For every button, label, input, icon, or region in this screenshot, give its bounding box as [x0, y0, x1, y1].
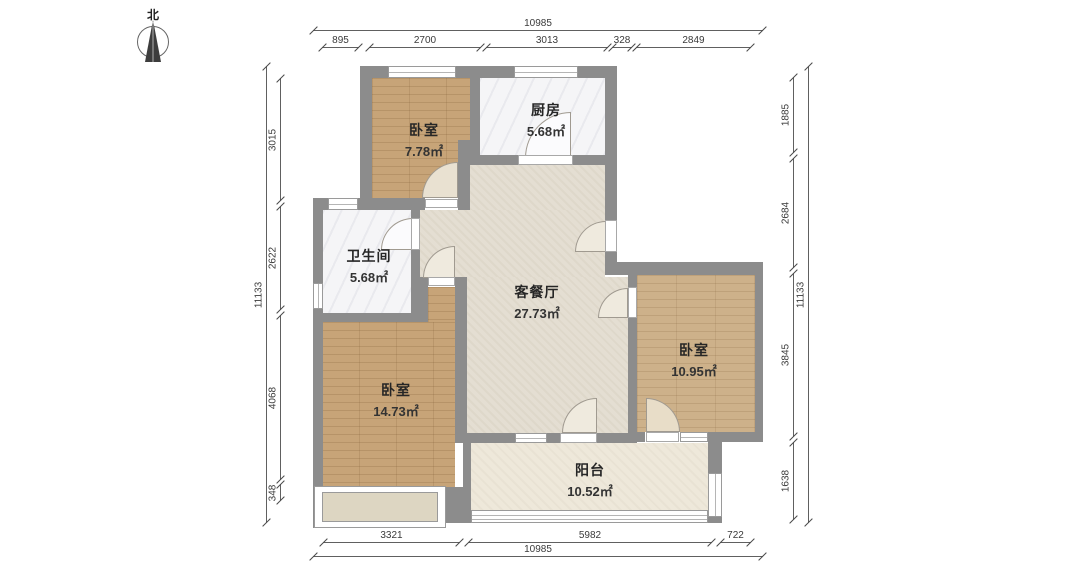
door-leaf	[428, 277, 455, 286]
room-area: 27.73㎡	[514, 303, 560, 322]
room-area: 7.78㎡	[405, 141, 443, 160]
room-area: 10.52㎡	[567, 481, 613, 500]
room-floor-bedroom-left-alcove	[428, 287, 455, 322]
room-area: 5.68㎡	[527, 121, 565, 140]
wall	[628, 318, 637, 443]
window-bathroom-side	[313, 283, 323, 309]
wall	[313, 313, 428, 322]
north-indicator: 北	[130, 6, 176, 64]
dim-right-seg: 3845	[793, 273, 794, 437]
door-leaf	[425, 199, 458, 208]
dim-left-seg: 4068	[280, 315, 281, 480]
floorplan-canvas: 北	[0, 0, 1074, 576]
door-leaf	[628, 287, 637, 318]
door-leaf	[411, 218, 420, 250]
door-leaf	[646, 432, 679, 442]
room-name: 厨房	[527, 100, 565, 120]
wall	[455, 433, 515, 443]
wall	[458, 140, 470, 210]
wall	[455, 287, 467, 443]
dim-left-seg: 3015	[280, 78, 281, 201]
bay-window-inner	[322, 492, 438, 522]
wall	[455, 277, 467, 287]
wall	[443, 487, 471, 523]
room-area: 10.95㎡	[671, 361, 717, 380]
wall	[480, 155, 518, 165]
room-label-bathroom: 卫生间 5.68㎡	[347, 246, 392, 286]
room-floor-living-corridor	[470, 165, 605, 210]
dim-top-seg: 3013	[486, 47, 608, 48]
room-name: 卧室	[405, 120, 443, 140]
dim-bottom-seg: 3321	[323, 542, 460, 543]
dim-right-seg: 1638	[793, 442, 794, 520]
room-name: 客餐厅	[514, 282, 560, 302]
wall	[470, 66, 480, 165]
wall	[605, 262, 763, 275]
dim-bottom-seg: 5982	[468, 542, 712, 543]
wall	[755, 262, 763, 440]
dim-top-seg: 2700	[369, 47, 481, 48]
dim-bottom-seg: 722	[720, 542, 751, 543]
room-name: 卧室	[373, 380, 419, 400]
window-bathroom-top	[328, 198, 358, 210]
compass-arrow-slit	[153, 22, 154, 62]
room-name: 卫生间	[347, 246, 392, 266]
dim-top-seg: 2849	[636, 47, 751, 48]
balcony-door-leaf	[560, 433, 597, 443]
dim-right-total: 11133	[808, 66, 809, 523]
wall	[628, 432, 645, 442]
room-area: 5.68㎡	[347, 267, 392, 286]
room-area: 14.73㎡	[373, 401, 419, 420]
room-label-balcony: 阳台 10.52㎡	[567, 460, 613, 500]
wall	[547, 433, 560, 443]
window-living-balcony	[515, 433, 547, 443]
wall	[360, 66, 372, 210]
wall	[628, 275, 637, 287]
wall	[411, 198, 420, 218]
wall	[597, 433, 628, 443]
room-label-bedroom-left: 卧室 14.73㎡	[373, 380, 419, 420]
dim-left-seg: 348	[280, 484, 281, 501]
window-balcony-side	[708, 473, 722, 517]
room-name: 阳台	[567, 460, 613, 480]
room-label-bedroom-right: 卧室 10.95㎡	[671, 340, 717, 380]
room-label-kitchen: 厨房 5.68㎡	[527, 100, 565, 140]
wall	[313, 198, 323, 528]
window-bedroom-right-balcony	[680, 432, 708, 442]
dim-right-seg: 1885	[793, 77, 794, 153]
wall	[605, 66, 617, 220]
door-leaf	[518, 155, 573, 165]
dim-right-seg: 2684	[793, 158, 794, 268]
window-bedroom-top	[388, 66, 456, 78]
room-name: 卧室	[671, 340, 717, 360]
window-kitchen	[514, 66, 578, 78]
window-balcony-front	[471, 510, 708, 523]
dim-bottom-total: 10985	[313, 556, 763, 557]
dim-top-total: 10985	[313, 30, 763, 31]
room-label-bedroom-top: 卧室 7.78㎡	[405, 120, 443, 160]
wall	[573, 155, 605, 165]
dim-top-seg: 328	[612, 47, 632, 48]
dim-left-seg: 2622	[280, 206, 281, 310]
dim-top-seg: 895	[322, 47, 359, 48]
entry-door-leaf	[605, 220, 617, 252]
wall	[708, 440, 722, 473]
room-label-living-dining: 客餐厅 27.73㎡	[514, 282, 560, 322]
